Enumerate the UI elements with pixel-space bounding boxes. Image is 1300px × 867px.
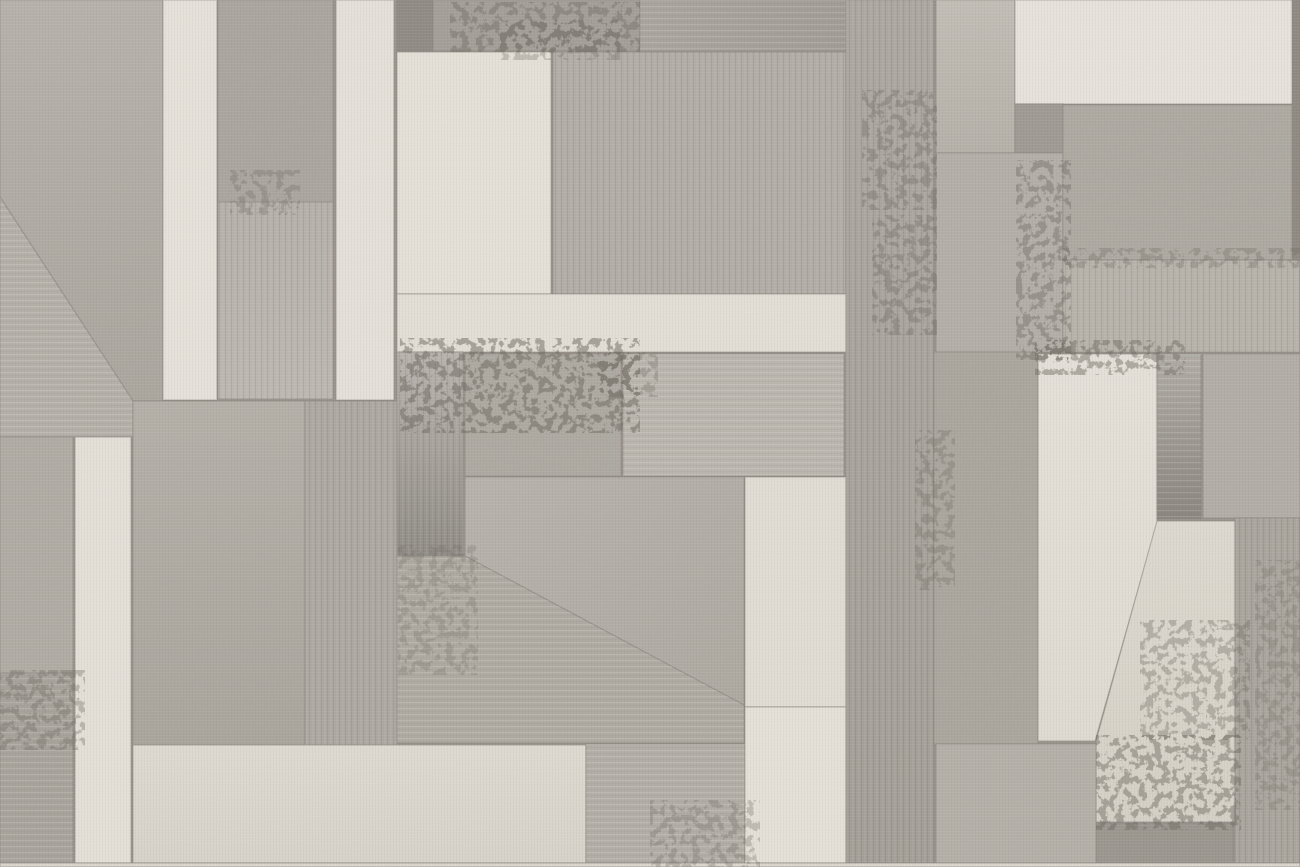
grain-overlay xyxy=(0,0,1300,867)
patchwork-artwork xyxy=(0,0,1300,867)
patchwork-svg xyxy=(0,0,1300,867)
